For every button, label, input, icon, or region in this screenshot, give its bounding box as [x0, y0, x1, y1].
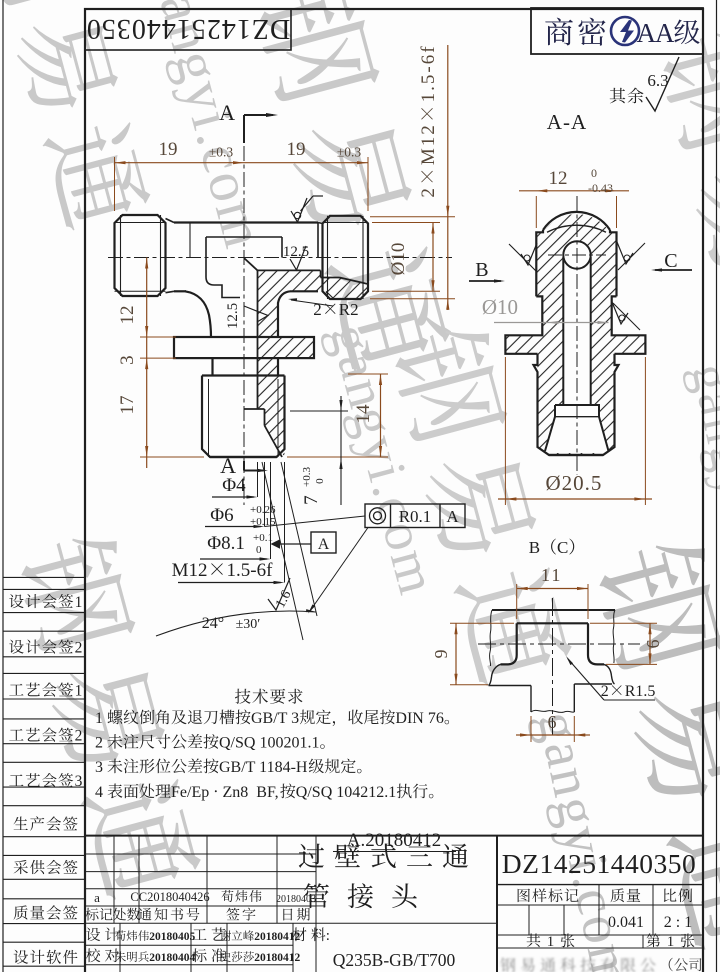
- svg-text:1.5-6f: 1.5-6f: [418, 44, 439, 102]
- svg-text:Q235B-GB/T700: Q235B-GB/T700: [333, 950, 456, 970]
- svg-text:±0.3: ±0.3: [209, 145, 234, 160]
- svg-text:1: 1: [542, 934, 560, 950]
- svg-text:DZ14251440350: DZ14251440350: [86, 13, 290, 44]
- svg-text:3: 3: [117, 355, 138, 365]
- svg-text:14: 14: [353, 404, 374, 424]
- svg-text:-0.43: -0.43: [588, 181, 613, 195]
- svg-text:1: 1: [75, 683, 84, 700]
- svg-text:2: 2: [418, 186, 439, 198]
- svg-text:Ø10: Ø10: [482, 295, 518, 319]
- svg-text:AA: AA: [637, 18, 675, 48]
- svg-text:1: 1: [95, 710, 107, 727]
- svg-text:12: 12: [549, 168, 568, 189]
- svg-text:Ø20.5: Ø20.5: [546, 471, 603, 495]
- svg-text:0.041: 0.041: [608, 914, 644, 931]
- svg-text:A: A: [219, 100, 235, 125]
- svg-text:2: 2: [95, 735, 107, 752]
- svg-text:C: C: [557, 538, 568, 557]
- svg-text:M12: M12: [418, 123, 439, 165]
- svg-text:Q/SQ 104212.1: Q/SQ 104212.1: [296, 784, 396, 801]
- svg-text:+0.1: +0.1: [253, 532, 273, 544]
- svg-text:20180404: 20180404: [149, 952, 195, 964]
- svg-text:12: 12: [117, 306, 138, 325]
- svg-text:3: 3: [95, 759, 107, 776]
- svg-text:DZ14251440350: DZ14251440350: [502, 848, 696, 879]
- svg-text:12.5: 12.5: [225, 303, 241, 329]
- svg-text:M12: M12: [172, 560, 208, 581]
- svg-text:+0.3: +0.3: [301, 467, 313, 487]
- svg-text:A: A: [446, 507, 459, 526]
- svg-text:A-A: A-A: [547, 110, 587, 134]
- svg-text:3: 3: [75, 773, 84, 790]
- svg-text:CC2018040426: CC2018040426: [130, 890, 209, 904]
- svg-text:7: 7: [301, 495, 322, 505]
- svg-text:2: 2: [75, 728, 84, 745]
- svg-text:Q/SQ 100201.1: Q/SQ 100201.1: [219, 735, 319, 752]
- svg-text:19: 19: [159, 139, 178, 160]
- svg-text:20180412: 20180412: [254, 952, 300, 964]
- svg-text:Φ6: Φ6: [210, 505, 233, 526]
- svg-text:6: 6: [643, 640, 663, 649]
- svg-text:Φ4: Φ4: [222, 475, 246, 496]
- svg-text:B: B: [529, 538, 540, 557]
- svg-text:GB/T 3: GB/T 3: [251, 710, 299, 727]
- svg-text:20180405: 20180405: [149, 931, 195, 943]
- svg-text:2: 2: [75, 640, 84, 657]
- svg-text:GB/T 1184-H: GB/T 1184-H: [219, 759, 308, 776]
- svg-text:0: 0: [314, 478, 326, 484]
- svg-text:±0.3: ±0.3: [337, 145, 362, 160]
- svg-text:1.5-6f: 1.5-6f: [227, 560, 274, 581]
- svg-text:Zn8 BF,: Zn8 BF,: [219, 784, 279, 801]
- svg-text:9: 9: [431, 650, 451, 659]
- svg-text:24°: 24°: [202, 615, 224, 632]
- svg-text:R1.5: R1.5: [625, 683, 656, 700]
- svg-text:C: C: [664, 250, 677, 272]
- svg-text:1: 1: [75, 594, 84, 611]
- svg-text:Ø10: Ø10: [388, 243, 409, 276]
- svg-text:Fe/Ep: Fe/Ep: [171, 784, 213, 801]
- svg-text:20180403: 20180403: [276, 894, 316, 905]
- svg-text:11: 11: [541, 565, 562, 585]
- svg-text:R2: R2: [339, 300, 359, 319]
- svg-text:DIN 76: DIN 76: [395, 710, 443, 727]
- svg-text:Φ8.1: Φ8.1: [207, 533, 245, 554]
- svg-text:A: A: [318, 536, 330, 553]
- svg-text:R0.1: R0.1: [399, 507, 432, 526]
- svg-text:4: 4: [95, 784, 107, 801]
- svg-text:1: 1: [662, 934, 680, 950]
- svg-text:6: 6: [548, 712, 557, 732]
- svg-text:19: 19: [287, 139, 306, 160]
- svg-text:17: 17: [117, 396, 138, 415]
- svg-text:A.20180412: A.20180412: [347, 830, 441, 851]
- svg-text:±30′: ±30′: [236, 617, 261, 632]
- svg-text:a: a: [94, 890, 100, 905]
- svg-text:0: 0: [256, 544, 262, 556]
- svg-text:2 : 1: 2 : 1: [664, 914, 692, 931]
- svg-text:B: B: [475, 259, 488, 281]
- svg-text:0: 0: [591, 166, 597, 180]
- svg-text::: :: [326, 928, 330, 944]
